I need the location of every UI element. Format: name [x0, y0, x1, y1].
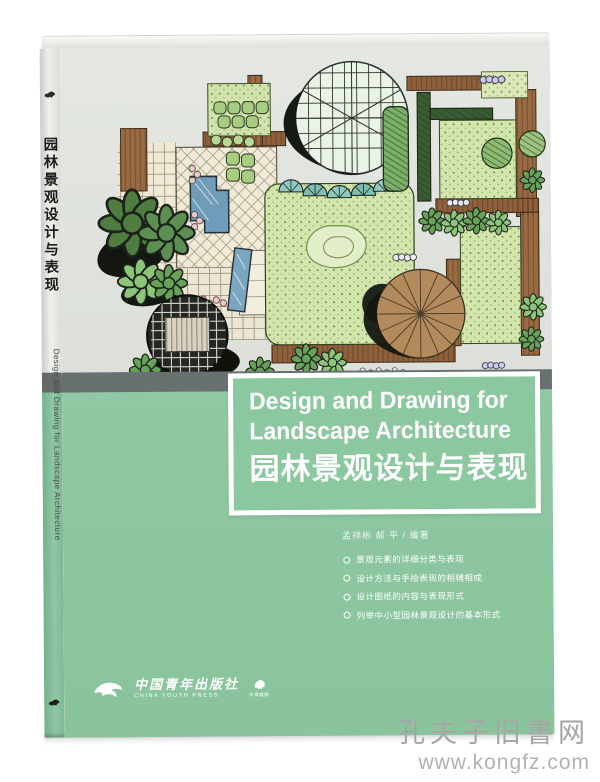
publisher-name-chinese: 中国青年出版社 [134, 678, 239, 692]
selling-point-text: 景观元素的详细分类与表现 [356, 553, 464, 566]
author-line: 孟祥彬 郝 平 / 编著 [342, 528, 430, 542]
list-item: 设计方法与手绘表现的相辅相成 [343, 571, 548, 584]
bullet-ring-icon [344, 612, 351, 619]
spine-lion-icon [43, 89, 57, 100]
cover-title-english-line1: Design and Drawing for [249, 385, 524, 417]
cover-title-english-line2: Landscape Architecture [249, 415, 524, 447]
phoenix-logo-icon [92, 678, 124, 700]
list-item: 景观元素的详细分类与表现 [343, 552, 548, 565]
spine-lion-icon [47, 697, 61, 708]
book-front-cover: Design and Drawing for Landscape Archite… [60, 45, 555, 737]
publisher-name-english: CHINA YOUTH PRESS [134, 693, 239, 699]
bullet-ring-icon [343, 593, 350, 600]
imprint-caption: 中青雄狮 [249, 692, 269, 698]
publisher-block: 中国青年出版社 CHINA YOUTH PRESS 中青雄狮 [92, 677, 269, 700]
product-photo: 园林景观设计与表现 Design and Drawing for Landsca… [0, 0, 600, 782]
list-item: 设计图纸的内容与表现形式 [343, 589, 548, 602]
garden-plan-illustration [96, 49, 548, 384]
bullet-ring-icon [343, 556, 350, 563]
bullet-ring-icon [343, 575, 350, 582]
title-block: Design and Drawing for Landscape Archite… [228, 371, 541, 515]
spine-title-english: Design and Drawing for Landscape Archite… [43, 349, 62, 541]
watermark-site-name: 孔夫子旧書网 [398, 718, 590, 750]
cover-title-chinese: 园林景观设计与表现 [249, 447, 535, 491]
spine-title-chinese: 园林景观设计与表现 [40, 137, 61, 295]
selling-point-text: 设计方法与手绘表现的相辅相成 [356, 571, 482, 584]
watermark: 孔夫子旧書网 www.kongfz.com [398, 718, 590, 776]
watermark-site-url: www.kongfz.com [398, 750, 590, 776]
book: 园林景观设计与表现 Design and Drawing for Landsca… [40, 32, 555, 738]
selling-point-text: 设计图纸的内容与表现形式 [356, 590, 464, 603]
lion-logo-icon [252, 678, 267, 691]
selling-point-text: 列举中小型园林景观设计的基本形式 [357, 608, 501, 621]
selling-points-list: 景观元素的详细分类与表现 设计方法与手绘表现的相辅相成 设计图纸的内容与表现形式… [343, 552, 548, 621]
list-item: 列举中小型园林景观设计的基本形式 [344, 608, 549, 621]
